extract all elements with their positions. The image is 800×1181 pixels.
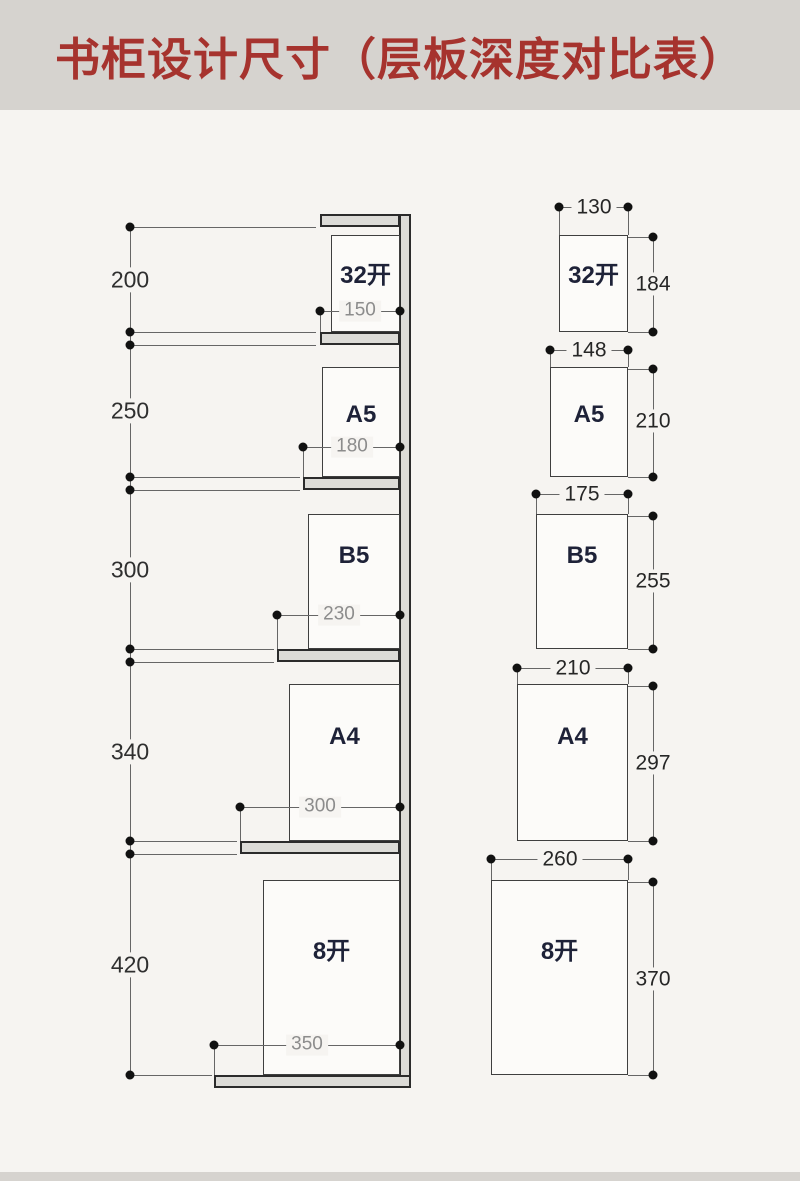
shelf-depth-label: 300 — [299, 797, 341, 818]
ext-line — [130, 490, 300, 491]
book-label: A5 — [323, 401, 399, 429]
book-height-label: 255 — [630, 569, 675, 592]
ext-line — [130, 841, 237, 842]
book-label: 32开 — [332, 255, 399, 290]
shelf-depth-label: 350 — [286, 1035, 328, 1056]
dim-dot — [396, 611, 405, 620]
dim-dot — [126, 473, 135, 482]
bottom-strip — [0, 1172, 800, 1181]
book-label: 8开 — [264, 931, 399, 966]
ext-line — [130, 1075, 212, 1076]
dim-dot — [649, 682, 658, 691]
dim-dot — [624, 203, 633, 212]
book-width-label: 130 — [571, 195, 616, 218]
page-title: 书柜设计尺寸（层板深度对比表） — [55, 23, 745, 88]
dim-dot — [624, 855, 633, 864]
book-height-label: 184 — [630, 272, 675, 295]
dim-dot — [649, 878, 658, 887]
shelf-depth-label: 230 — [318, 605, 360, 626]
dim-dot — [126, 850, 135, 859]
book-width-label: 260 — [537, 847, 582, 870]
dim-dot — [624, 490, 633, 499]
ref-book-8k: 8开 — [491, 880, 628, 1075]
shelf-depth-label: 180 — [331, 437, 373, 458]
ref-book-a5: A5 — [550, 367, 628, 477]
dim-dot — [546, 346, 555, 355]
dim-dot — [126, 658, 135, 667]
title-band: 书柜设计尺寸（层板深度对比表） — [0, 0, 800, 110]
depth-dim-leader — [214, 1045, 215, 1075]
book-label: A5 — [551, 401, 627, 429]
cabinet-back-panel — [399, 214, 411, 1088]
dim-dot — [555, 203, 564, 212]
dim-dot — [236, 803, 245, 812]
dim-dot — [126, 341, 135, 350]
shelf-height-label: 200 — [106, 267, 154, 292]
book-label: B5 — [309, 542, 399, 570]
book-label: A4 — [290, 723, 399, 751]
dim-dot — [649, 365, 658, 374]
cabinet-book-a5: A5 — [322, 367, 400, 477]
dim-dot — [649, 473, 658, 482]
ext-line — [130, 332, 316, 333]
cabinet-book-b5: B5 — [308, 514, 400, 649]
shelf-height-label: 420 — [106, 952, 154, 977]
dim-dot — [299, 443, 308, 452]
depth-dim-leader — [240, 807, 241, 841]
ext-line — [130, 662, 274, 663]
dim-dot — [649, 1071, 658, 1080]
depth-dim-leader — [303, 447, 304, 477]
shelf-board-4 — [240, 841, 400, 854]
dim-dot — [649, 233, 658, 242]
dim-dot — [396, 803, 405, 812]
book-label: B5 — [537, 542, 627, 570]
shelf-board-1 — [320, 332, 400, 345]
book-height-label: 210 — [630, 409, 675, 432]
dim-dot — [624, 346, 633, 355]
dim-dot — [126, 837, 135, 846]
shelf-height-label: 300 — [106, 557, 154, 582]
cabinet-bottom-board — [214, 1075, 411, 1088]
book-width-label: 175 — [559, 482, 604, 505]
ext-line — [130, 854, 237, 855]
shelf-height-label: 250 — [106, 398, 154, 423]
book-label: A4 — [518, 723, 627, 751]
book-width-label: 210 — [550, 656, 595, 679]
book-height-label: 297 — [630, 751, 675, 774]
dim-dot — [487, 855, 496, 864]
ref-book-32k: 32开 — [559, 235, 628, 332]
dim-dot — [649, 328, 658, 337]
dim-dot — [316, 307, 325, 316]
shelf-board-2 — [303, 477, 400, 490]
book-label: 8开 — [492, 931, 627, 966]
book-label: 32开 — [560, 255, 627, 290]
dim-dot — [649, 837, 658, 846]
dim-dot — [532, 490, 541, 499]
book-width-label: 148 — [566, 338, 611, 361]
ext-line — [130, 227, 316, 228]
dim-dot — [396, 307, 405, 316]
dim-dot — [126, 223, 135, 232]
cabinet-top-board — [320, 214, 400, 227]
shelf-board-3 — [277, 649, 400, 662]
ext-line — [130, 345, 316, 346]
book-height-label: 370 — [630, 967, 675, 990]
ref-book-b5: B5 — [536, 514, 628, 649]
dim-dot — [396, 1041, 405, 1050]
dim-dot — [273, 611, 282, 620]
dim-dot — [126, 645, 135, 654]
dim-dot — [126, 328, 135, 337]
dim-dot — [126, 1071, 135, 1080]
diagram-canvas: 书柜设计尺寸（层板深度对比表） 32开 A5 B5 A4 8开 32开 A5 B… — [0, 0, 800, 1181]
shelf-height-label: 340 — [106, 739, 154, 764]
dim-dot — [210, 1041, 219, 1050]
dim-dot — [649, 512, 658, 521]
ref-book-a4: A4 — [517, 684, 628, 841]
ext-line — [130, 477, 300, 478]
depth-dim-leader — [277, 615, 278, 649]
shelf-depth-label: 150 — [339, 301, 381, 322]
dim-dot — [126, 486, 135, 495]
dim-dot — [396, 443, 405, 452]
dim-dot — [649, 645, 658, 654]
ext-line — [130, 649, 274, 650]
dim-dot — [513, 664, 522, 673]
dim-dot — [624, 664, 633, 673]
